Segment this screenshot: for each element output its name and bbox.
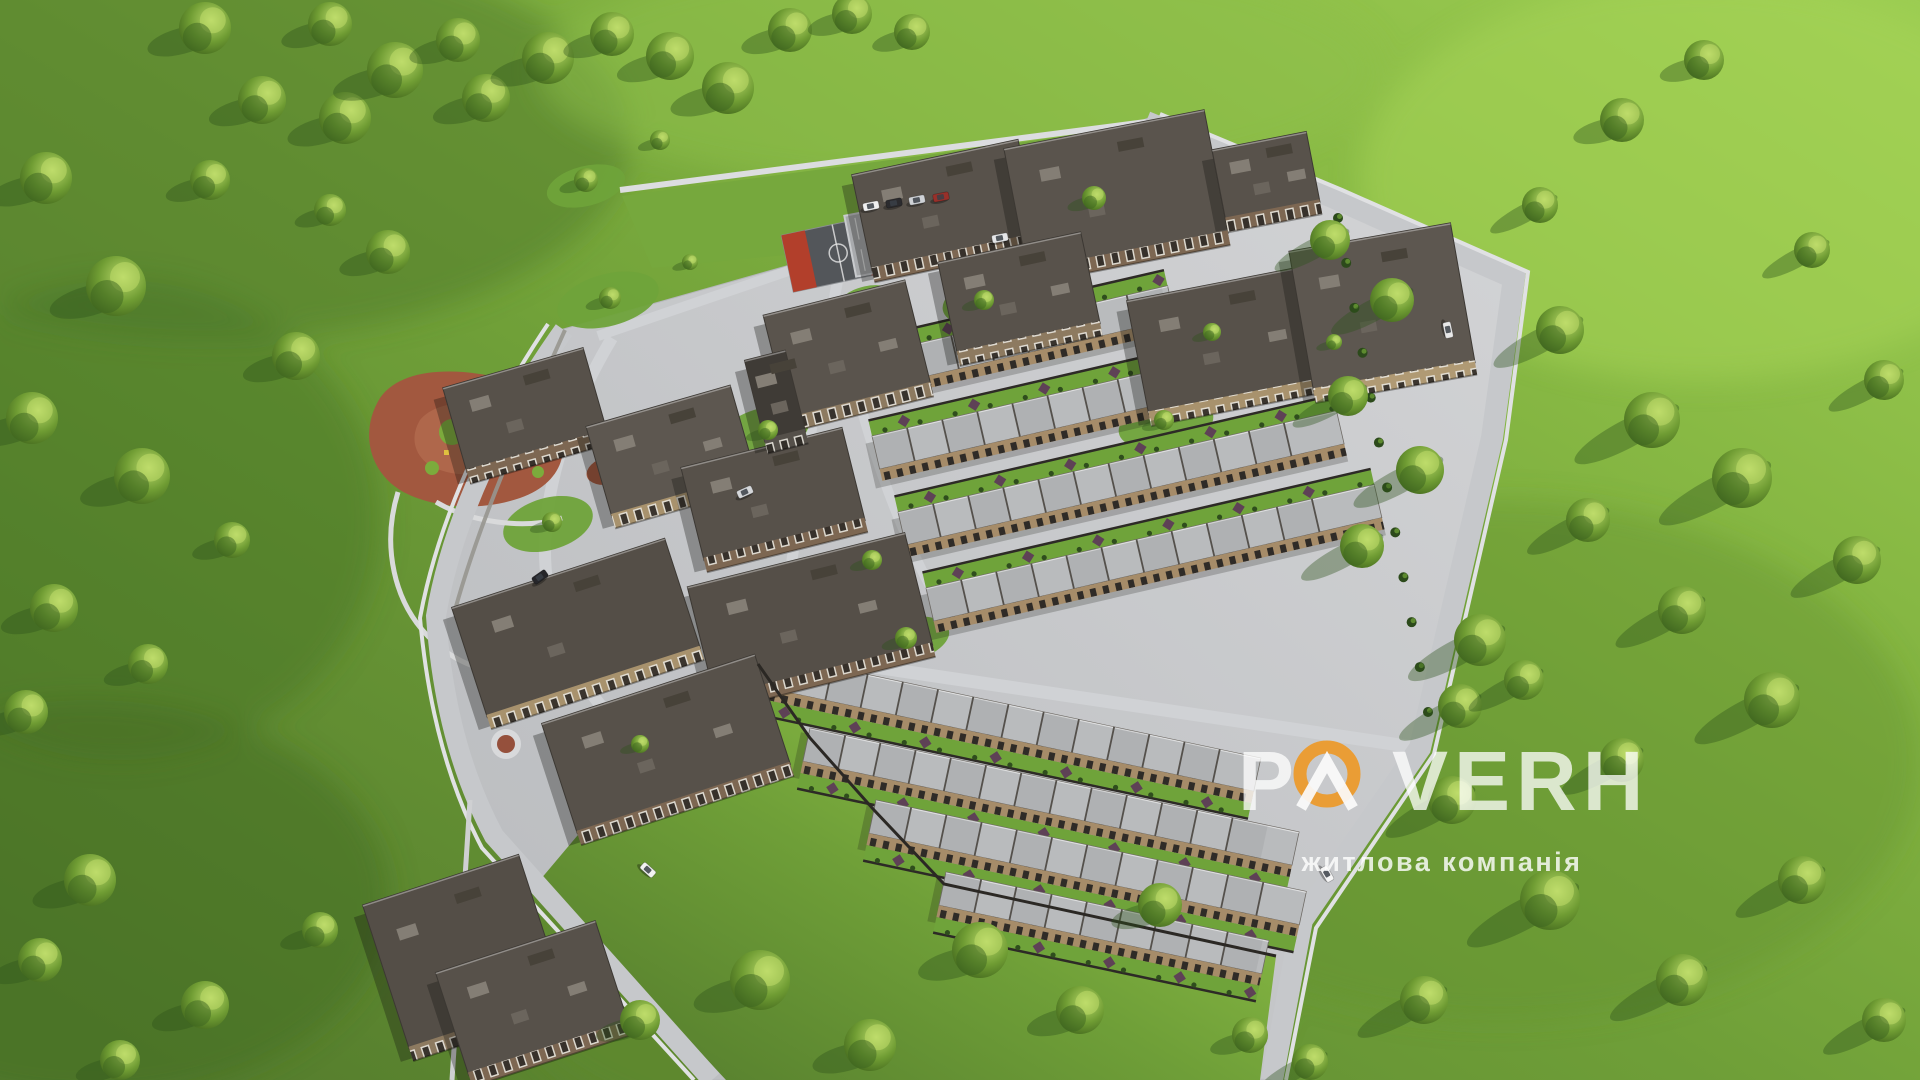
tree-shade-side [1327,340,1336,349]
tree-shade-side [544,520,555,531]
tree-shade-side [1525,894,1558,927]
tree-shade-side [683,260,692,269]
logo-subtitle: житлова компанія [1301,847,1583,877]
tree-shade-side [632,742,642,752]
tree-shade-side [193,176,215,198]
tree-shade-side [1662,605,1688,631]
tree-shade-side [652,138,663,149]
tree-shade-side [1525,201,1545,221]
tree-shade-side [650,51,676,77]
tree-shade-side [1569,516,1593,540]
tree-shade-side [864,558,875,569]
tree-shade-side [576,178,589,191]
tree-shade-side [976,298,987,309]
tree-shade-side [1837,555,1863,581]
tree-shade-side [1540,325,1566,351]
tree-shade-side [848,1040,877,1069]
tree-shade-side [1235,1031,1255,1051]
tree-shade-side [24,173,53,202]
tree-shade-side [1373,296,1397,320]
tree-shade-side [526,53,555,82]
hedge-bush-highlight [1402,573,1407,578]
tree-shade-side [1295,1058,1315,1078]
play-mound [532,466,544,478]
tree-shade-side [371,64,402,95]
masterplan-scene: P VERH житлова компанія [0,0,1920,1080]
tree-shade-side [1507,676,1529,698]
hedge-bush-highlight [1337,214,1342,219]
tree-shade-side [760,428,771,439]
tree-shade-side [601,296,613,308]
hedge-bush-highlight [1370,394,1375,399]
tree-shade-side [835,10,857,32]
tree-shade-side [466,93,492,119]
tree-shade-side [897,28,917,48]
tree-shade-side [91,280,124,313]
lookout-circle-center [497,735,515,753]
logo-letter-p: P [1238,734,1300,828]
tree-shade-side [1797,246,1817,266]
logo-letters-verh: VERH [1392,734,1649,828]
tree-shade-side [131,660,153,682]
tree-shade-side [1867,376,1889,398]
tree-shade-side [1141,901,1165,925]
tree-shade-side [7,708,31,732]
hedge-bush-highlight [1378,439,1383,444]
tree-shade-side [34,603,60,629]
hedge-bush-highlight [1345,259,1350,264]
tree-shade-side [1687,56,1709,78]
tree-shade-side [311,20,335,44]
tree-shade-side [305,926,325,946]
tree-shade-side [1084,196,1097,209]
tree-shade-side [183,23,212,52]
tree-shade-side [1343,542,1367,566]
tree-shade-side [1441,702,1465,726]
tree-shade-side [1748,694,1779,725]
tree-shade-side [1628,414,1659,445]
tree-shade-side [1400,465,1426,491]
tree-shade-side [242,95,268,121]
hedge-bush-highlight [1362,349,1367,354]
play-mound [425,461,439,475]
tree-shade-side [1782,875,1808,901]
tree-shade-side [118,470,149,501]
tree-shade-side [185,1000,211,1026]
play-equipment [444,450,449,455]
tree-shade-side [1404,995,1430,1021]
tree-shade-side [68,875,97,904]
tree-shade-side [1458,635,1487,664]
tree-shade-side [1717,472,1750,505]
tree-shade-side [956,944,987,975]
tree-shade-side [103,1056,125,1078]
hedge-bush-highlight [1394,528,1399,533]
tree-shade-side [593,30,617,54]
tree-shade-side [323,113,352,142]
hedge-bush-highlight [1411,618,1416,623]
tree-shade-side [1313,236,1335,258]
tree-shade-side [706,83,735,112]
tree-shade-side [316,207,334,225]
tree-shade-side [1204,330,1214,340]
tree-shade-side [1331,392,1353,414]
tree-shade-side [10,413,39,442]
tree-shade-side [1603,116,1627,140]
tree-shade-side [1156,418,1167,429]
tree-shade-side [439,36,463,60]
tree-shade-side [21,956,45,980]
tree-shade-side [735,974,768,1007]
tree-shade-side [1865,1016,1889,1040]
tree-shade-side [217,536,237,556]
tree-shade-side [771,26,795,50]
tree-shade-side [1660,975,1689,1004]
aerial-render-view: P VERH житлова компанія [0,0,1920,1080]
tree-shade-side [276,351,302,377]
tree-shade-side [623,1016,645,1038]
tree-shade-side [1060,1005,1086,1031]
tree-shade-side [369,248,393,272]
tree-shade-side [897,636,909,648]
